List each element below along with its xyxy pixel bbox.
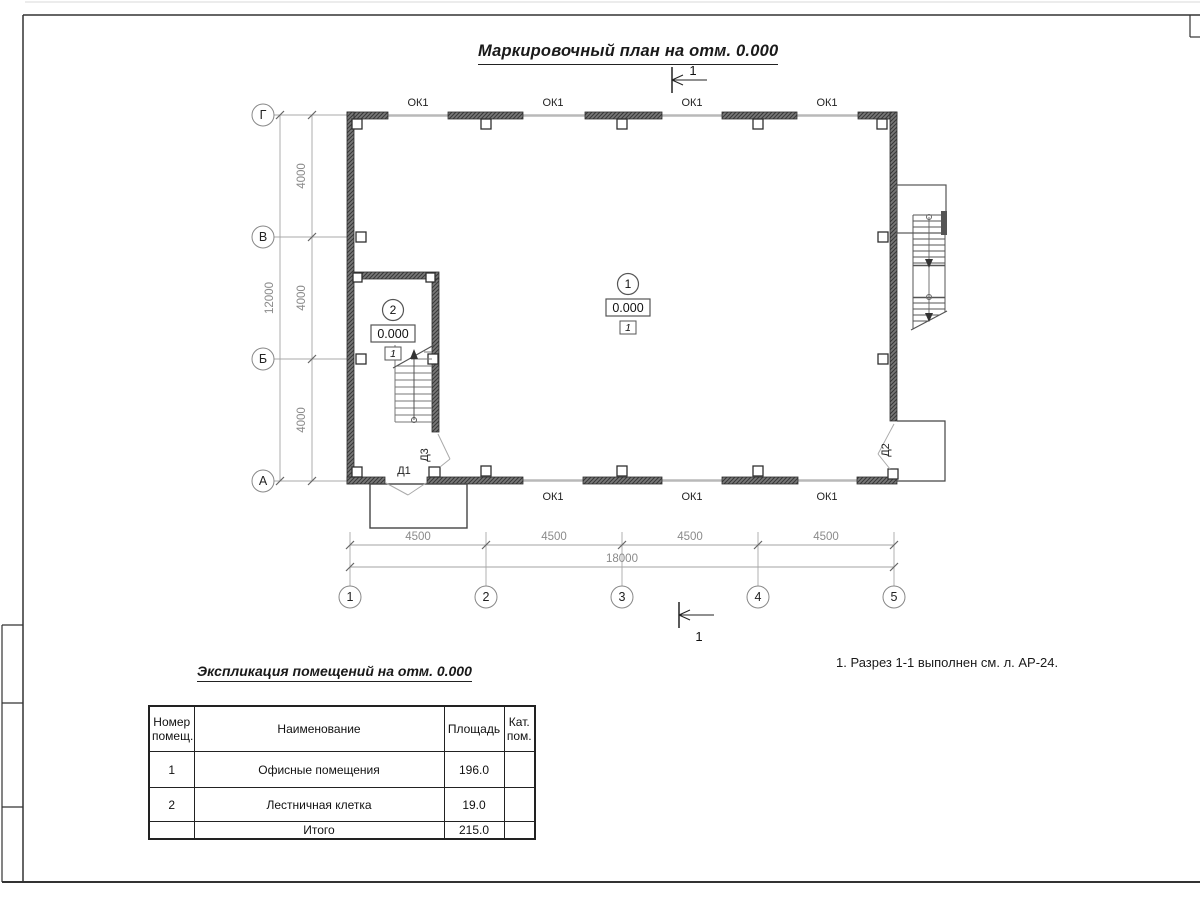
window-label-top-1: ОК1: [407, 97, 428, 109]
window-label-top-2: ОК1: [542, 97, 563, 109]
room-1-floor-type: 1: [625, 322, 631, 334]
window-label-top-3: ОК1: [681, 97, 702, 109]
dimension-ticks: [276, 111, 898, 571]
axis-label-b: Б: [259, 352, 267, 366]
room-number-cell: 1: [149, 752, 194, 788]
dim-bottom-3: 4500: [677, 531, 703, 543]
axis-bubble-labels: Г В Б А 1 2 3 4 5: [259, 108, 898, 604]
axis-label-3: 3: [619, 590, 626, 604]
axis-label-5: 5: [891, 590, 898, 604]
col-header-name: Наименование: [194, 706, 444, 752]
axis-label-v: В: [259, 230, 267, 244]
dim-bottom-2: 4500: [541, 531, 567, 543]
page-title: Маркировочный план на отм. 0.000: [478, 42, 778, 65]
room-area-cell: 196.0: [444, 752, 504, 788]
room-name-cell: Офисные помещения: [194, 752, 444, 788]
window-label-bottom-3: ОК1: [816, 491, 837, 503]
dim-left-3: 4000: [296, 407, 308, 433]
porches: [370, 421, 945, 528]
room-2-floor-type: 1: [390, 348, 396, 360]
table-row: 2 Лестничная клетка 19.0: [149, 788, 535, 822]
axis-label-g: Г: [260, 108, 267, 122]
section-mark-top: 1: [672, 63, 707, 93]
room-marker-2: 2 0.000 1: [371, 300, 415, 361]
room-2-number: 2: [390, 303, 397, 317]
table-caption: Экспликация помещений на отм. 0.000: [197, 663, 472, 682]
dim-left-total: 12000: [264, 282, 276, 314]
total-label-cell: Итого: [194, 822, 444, 840]
window-lines: [388, 116, 858, 481]
section-mark-bottom: 1: [679, 602, 714, 644]
dim-bottom-4: 4500: [813, 531, 839, 543]
total-empty-cell: [149, 822, 194, 840]
axis-label-2: 2: [483, 590, 490, 604]
col-header-category: Кат. пом.: [504, 706, 535, 752]
door-label-d2: Д2: [880, 443, 892, 457]
dim-bottom-total: 18000: [606, 553, 638, 565]
walls: [347, 112, 897, 484]
room-1-elevation: 0.000: [612, 301, 643, 315]
dim-bottom-1: 4500: [405, 531, 431, 543]
room-explication-table: Номер помещ. Наименование Площадь Кат. п…: [148, 705, 536, 840]
dim-left-1: 4000: [296, 163, 308, 189]
door-label-d1: Д1: [397, 465, 411, 477]
window-label-bottom-2: ОК1: [681, 491, 702, 503]
col-header-area: Площадь: [444, 706, 504, 752]
side-porch: [897, 421, 945, 481]
window-label-bottom-1: ОК1: [542, 491, 563, 503]
room-number-cell: 2: [149, 788, 194, 822]
room-2-elevation: 0.000: [377, 327, 408, 341]
col-header-number: Номер помещ.: [149, 706, 194, 752]
dim-left-2: 4000: [296, 285, 308, 311]
section-label-bottom: 1: [695, 629, 702, 644]
entrance-porch: [370, 484, 467, 528]
table-total-row: Итого 215.0: [149, 822, 535, 840]
room-category-cell: [504, 752, 535, 788]
section-label-top: 1: [689, 63, 696, 78]
external-stair: [897, 185, 947, 330]
table-row: 1 Офисные помещения 196.0: [149, 752, 535, 788]
total-category-cell: [504, 822, 535, 840]
window-label-top-4: ОК1: [816, 97, 837, 109]
note-text: 1. Разрез 1-1 выполнен см. л. АР-24.: [836, 655, 1058, 670]
axis-label-a: А: [259, 474, 268, 488]
axis-label-4: 4: [755, 590, 762, 604]
total-value-cell: 215.0: [444, 822, 504, 840]
door-label-d3: Д3: [419, 448, 431, 462]
table-header-row: Номер помещ. Наименование Площадь Кат. п…: [149, 706, 535, 752]
room-marker-1: 1 0.000 1: [606, 274, 650, 335]
room-1-number: 1: [625, 277, 632, 291]
axis-label-1: 1: [347, 590, 354, 604]
room-category-cell: [504, 788, 535, 822]
grid-axis-lines: [274, 115, 894, 586]
room-name-cell: Лестничная клетка: [194, 788, 444, 822]
room-area-cell: 19.0: [444, 788, 504, 822]
drawing-sheet: 4000 4000 4000 12000 4500 4500 4500 4500…: [0, 0, 1200, 900]
